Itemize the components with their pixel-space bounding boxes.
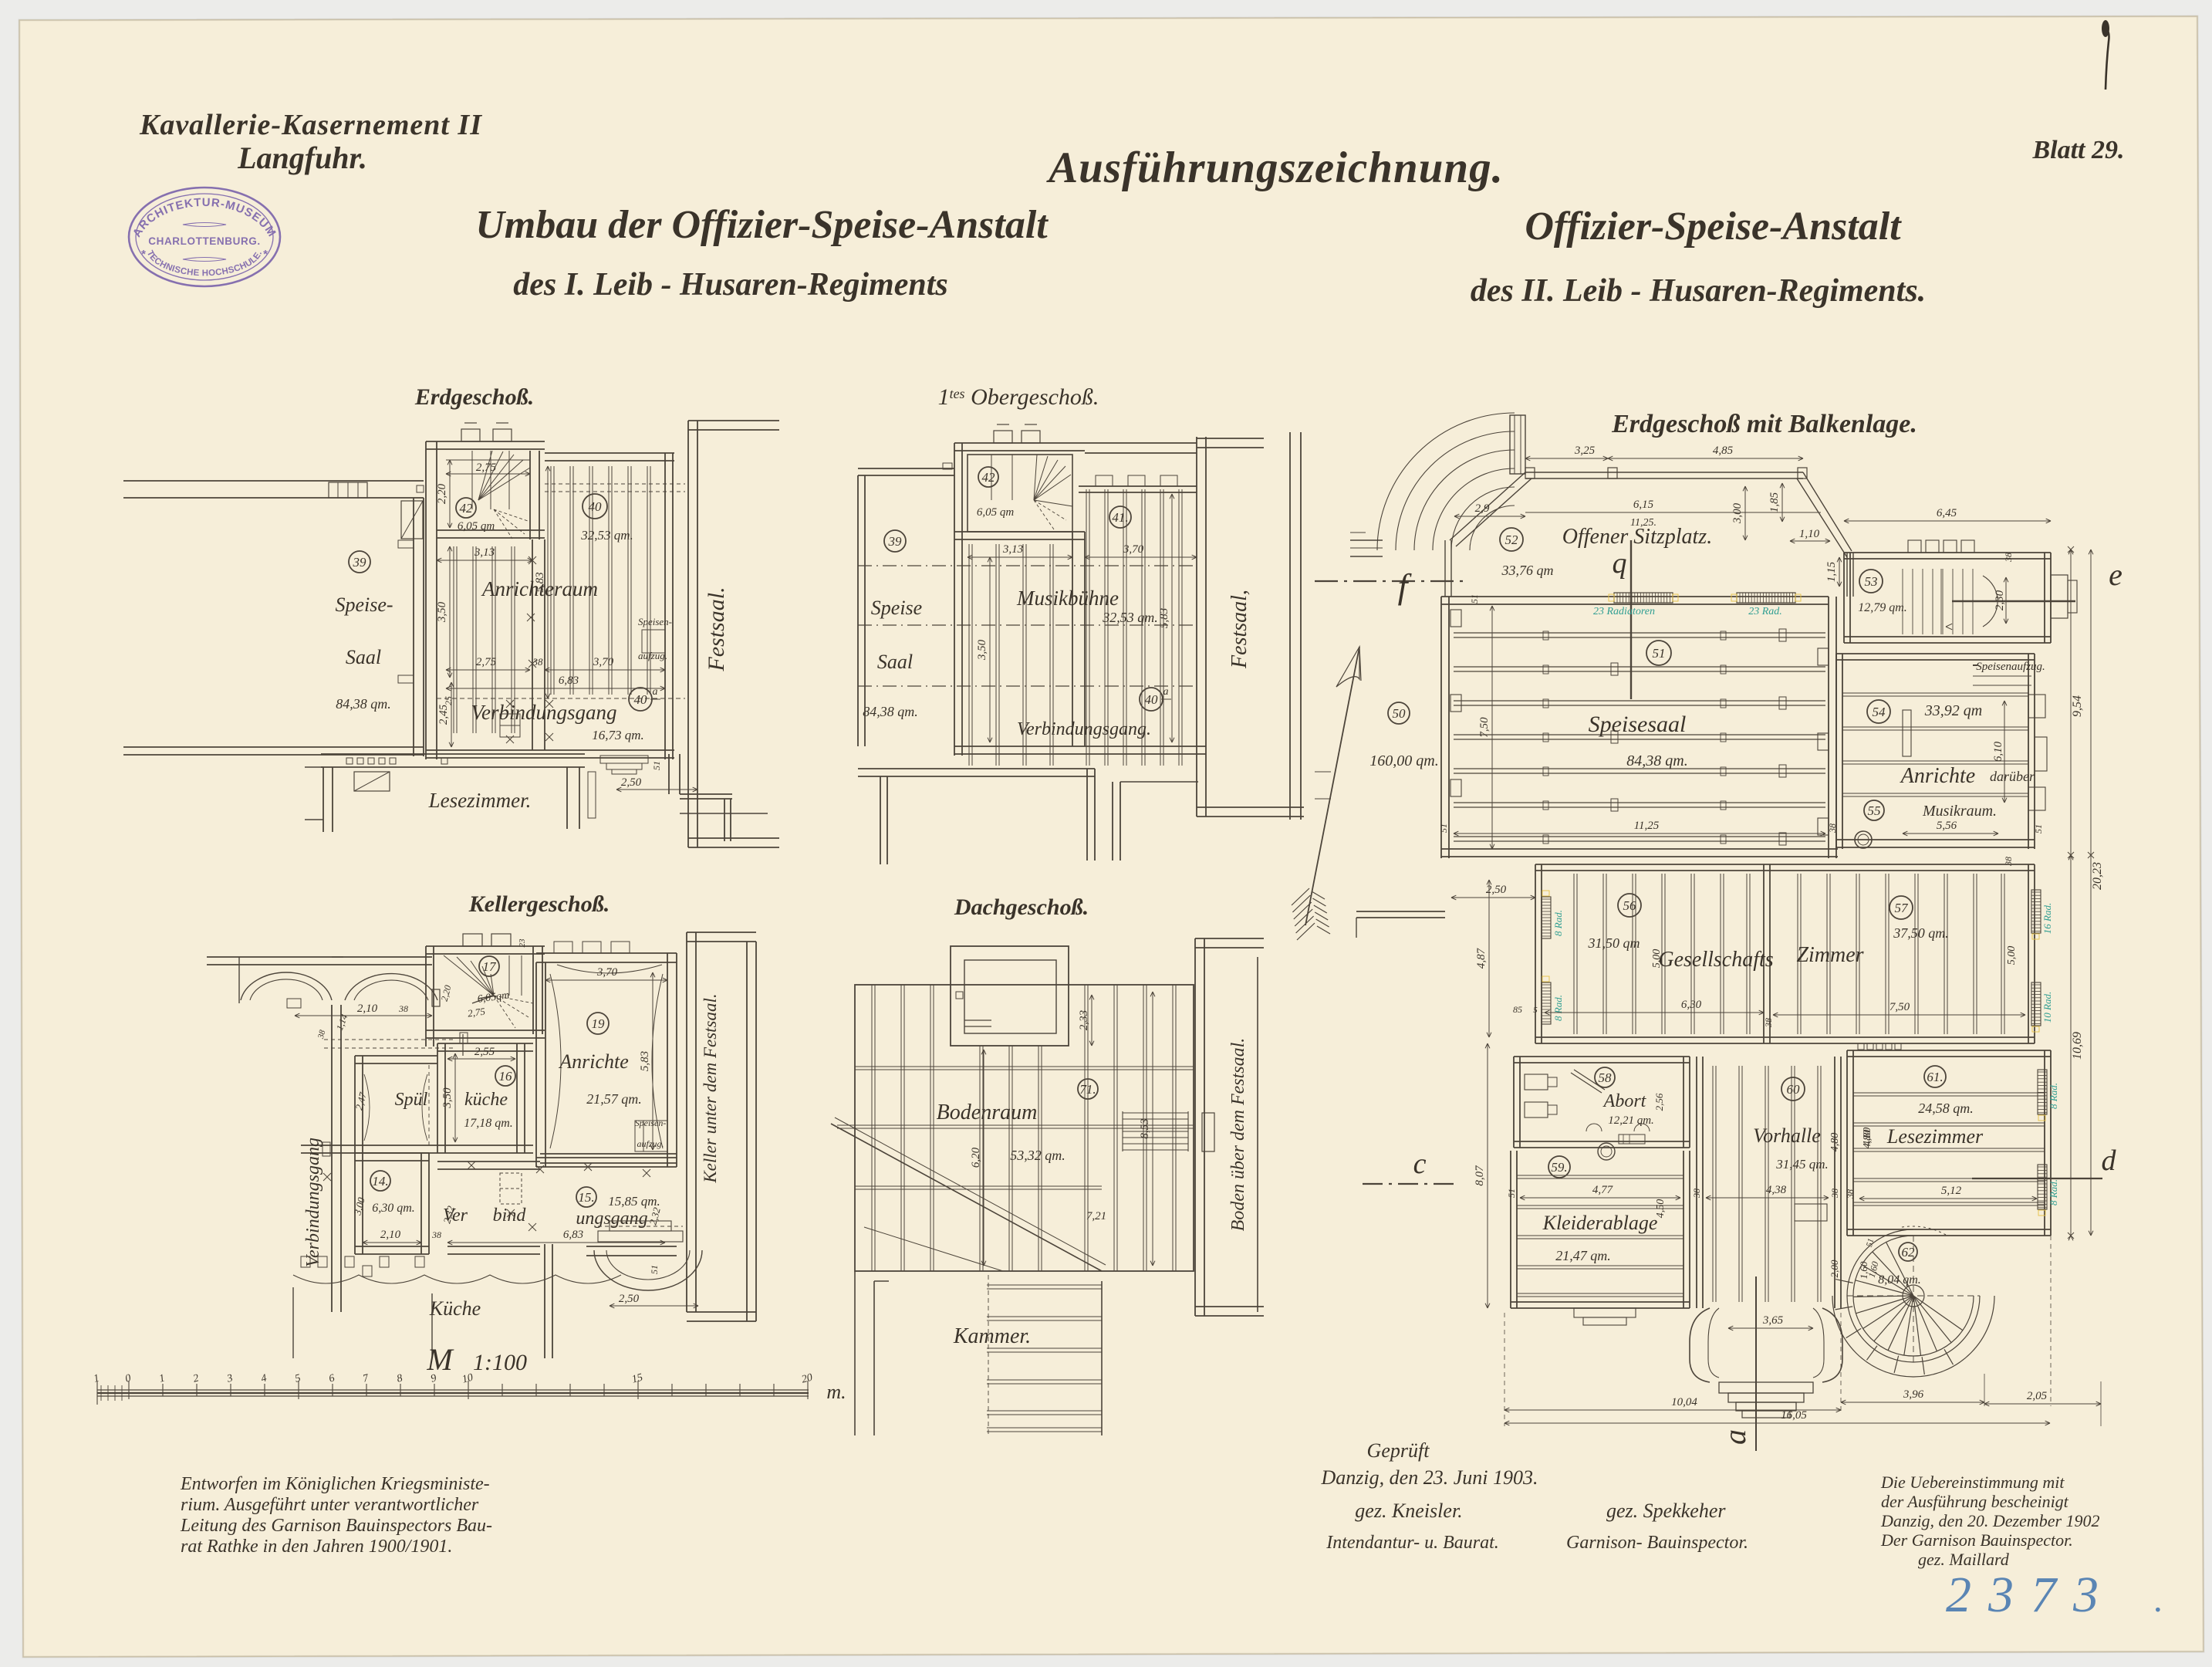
svg-text:20,23: 20,23 [2091, 862, 2104, 890]
svg-text:40: 40 [589, 499, 603, 514]
svg-text:3,96: 3,96 [1903, 1388, 1924, 1401]
svg-text:6,05 qm: 6,05 qm [458, 520, 495, 533]
svg-text:Verbindungsgang.: Verbindungsgang. [1017, 719, 1151, 739]
svg-text:10,69: 10,69 [2071, 1032, 2084, 1060]
svg-text:Offizier-Speise-Anstalt: Offizier-Speise-Anstalt [1525, 205, 1902, 249]
svg-text:Speisen-: Speisen- [638, 616, 672, 627]
svg-text:a: a [653, 686, 658, 698]
svg-text:bind: bind [493, 1205, 527, 1226]
svg-text:32,53 qm.: 32,53 qm. [1102, 610, 1158, 625]
svg-text:2,75: 2,75 [476, 656, 497, 668]
svg-text:a: a [1163, 686, 1169, 698]
svg-text:2,10: 2,10 [380, 1229, 401, 1241]
svg-text:Garnison- Bauinspector.: Garnison- Bauinspector. [1566, 1533, 1748, 1553]
svg-text:5,12: 5,12 [1941, 1185, 1962, 1197]
svg-text:2,50: 2,50 [621, 776, 642, 789]
svg-text:62: 62 [1902, 1245, 1916, 1260]
svg-text:84,38 qm.: 84,38 qm. [863, 704, 918, 719]
svg-text:8,53: 8,53 [1139, 1118, 1151, 1138]
svg-text:42: 42 [460, 501, 474, 516]
svg-text:Saal: Saal [346, 646, 381, 668]
svg-text:58: 58 [1599, 1070, 1613, 1085]
svg-text:Verbindungsgang: Verbindungsgang [471, 701, 617, 724]
svg-text:33,92 qm: 33,92 qm [1924, 702, 1982, 719]
svg-text:6,45: 6,45 [1937, 507, 1957, 519]
svg-text:2,9: 2,9 [1475, 502, 1490, 515]
svg-text:23 Radiatoren: 23 Radiatoren [1593, 606, 1655, 617]
svg-text:2,50: 2,50 [619, 1293, 640, 1305]
svg-text:Ausführungszeichnung.: Ausführungszeichnung. [1046, 144, 1504, 192]
svg-text:rat Rathke in den Jahren 1900/: rat Rathke in den Jahren 1900/1901. [181, 1537, 452, 1557]
svg-text:3,25: 3,25 [1574, 445, 1596, 457]
svg-text:5,56: 5,56 [1937, 820, 1957, 832]
svg-text:84,38 qm.: 84,38 qm. [1626, 752, 1687, 769]
svg-text:Dachgeschoß.: Dachgeschoß. [954, 894, 1089, 920]
svg-text:12,79 qm.: 12,79 qm. [1858, 601, 1907, 614]
svg-text:23: 23 [518, 938, 527, 948]
svg-text:2,10: 2,10 [357, 1003, 378, 1015]
svg-text:3,65: 3,65 [1762, 1314, 1784, 1327]
svg-text:Kammer.: Kammer. [953, 1324, 1031, 1348]
svg-text:der Ausführung bescheinigt: der Ausführung bescheinigt [1881, 1492, 2069, 1511]
svg-text:des I. Leib - Husaren-Regimen: des I. Leib - Husaren-Regiments [513, 267, 948, 303]
svg-text:51: 51 [1438, 823, 1449, 833]
svg-text:19: 19 [592, 1016, 606, 1031]
svg-text:8,07: 8,07 [1474, 1165, 1486, 1186]
svg-text:1,10: 1,10 [1799, 528, 1820, 540]
svg-text:Blatt 29.: Blatt 29. [2031, 136, 2124, 164]
svg-text:38: 38 [1691, 1189, 1702, 1199]
svg-text:4,87: 4,87 [1475, 947, 1488, 969]
svg-text:Lesezimmer: Lesezimmer [1886, 1125, 1984, 1148]
svg-text:Musikbühne: Musikbühne [1016, 587, 1119, 610]
svg-text:CHARLOTTENBURG.: CHARLOTTENBURG. [148, 235, 261, 247]
svg-text:aufzug.: aufzug. [638, 650, 667, 661]
svg-text:21,57 qm.: 21,57 qm. [586, 1091, 642, 1107]
svg-text:3,70: 3,70 [596, 966, 618, 979]
svg-text:m.: m. [826, 1381, 846, 1403]
svg-text:21,47 qm.: 21,47 qm. [1555, 1248, 1611, 1263]
svg-text:6,30: 6,30 [1681, 999, 1702, 1011]
svg-text:Festsaal.: Festsaal. [704, 587, 729, 671]
svg-text:51: 51 [651, 761, 662, 770]
svg-text:3,13: 3,13 [474, 546, 495, 559]
svg-text:56: 56 [1623, 898, 1637, 913]
svg-text:55: 55 [1868, 803, 1881, 818]
svg-text:14.: 14. [372, 1174, 388, 1189]
svg-text:Saal: Saal [877, 651, 913, 673]
svg-text:38: 38 [532, 656, 544, 668]
svg-text:3,50: 3,50 [976, 639, 988, 661]
svg-text:.: . [2154, 1579, 2163, 1620]
svg-text:Boden über dem Festsaal.: Boden über dem Festsaal. [1228, 1038, 1248, 1232]
svg-text:40: 40 [634, 692, 648, 707]
svg-text:53: 53 [1865, 574, 1878, 589]
svg-text:2,75: 2,75 [467, 1005, 486, 1019]
svg-text:aufzug.: aufzug. [637, 1138, 664, 1149]
svg-text:160,00 qm.: 160,00 qm. [1369, 752, 1438, 769]
svg-text:61.: 61. [1927, 1070, 1943, 1084]
svg-text:Speisenaufzug.: Speisenaufzug. [1976, 661, 2045, 673]
svg-text:Speisen-: Speisen- [635, 1118, 667, 1128]
svg-text:2,55: 2,55 [474, 1046, 495, 1058]
svg-text:*: * [263, 248, 268, 261]
svg-text:17,18 qm.: 17,18 qm. [464, 1117, 513, 1130]
svg-text:Intendantur- u. Baurat.: Intendantur- u. Baurat. [1326, 1533, 1499, 1553]
svg-text:38: 38 [2003, 553, 2014, 563]
svg-text:3,70: 3,70 [1123, 543, 1144, 556]
svg-text:16: 16 [499, 1069, 513, 1084]
svg-text:2373: 2373 [1946, 1567, 2116, 1623]
svg-text:60: 60 [1787, 1082, 1801, 1097]
svg-text:16,05: 16,05 [1781, 1409, 1807, 1422]
svg-text:85: 85 [1513, 1004, 1522, 1015]
svg-text:2,33: 2,33 [1078, 1010, 1090, 1030]
svg-text:6,15: 6,15 [1633, 499, 1654, 511]
svg-text:2,45: 2,45 [437, 704, 450, 725]
svg-text:3,13: 3,13 [1002, 543, 1023, 556]
svg-text:Vorhalle: Vorhalle [1753, 1124, 1821, 1147]
svg-text:51: 51 [1469, 594, 1480, 604]
svg-text:5: 5 [1533, 1006, 1538, 1015]
svg-text:Anrichte: Anrichte [1900, 764, 1975, 788]
svg-text:a: a [1717, 1429, 1752, 1445]
svg-text:38: 38 [398, 1003, 408, 1014]
svg-text:33,76 qm: 33,76 qm [1501, 563, 1554, 578]
svg-text:7,50: 7,50 [1478, 717, 1491, 738]
svg-text:71.: 71. [1079, 1082, 1096, 1097]
svg-text:2,00: 2,00 [1829, 1260, 1840, 1277]
svg-text:d: d [2102, 1145, 2117, 1177]
svg-text:2,56: 2,56 [1653, 1093, 1665, 1111]
svg-text:Festsaal,: Festsaal, [1228, 590, 1251, 669]
svg-text:8 Rad.: 8 Rad. [2048, 1179, 2059, 1205]
svg-text:39: 39 [888, 534, 903, 549]
svg-text:16,73 qm.: 16,73 qm. [592, 728, 644, 742]
svg-text:Leitung des Garnison Bauinspec: Leitung des Garnison Bauinspectors Bau- [180, 1516, 492, 1536]
svg-text:Kellergeschoß.: Kellergeschoß. [468, 891, 610, 917]
svg-text:38: 38 [1845, 1189, 1856, 1199]
svg-text:Entworfen im Königlichen Krieg: Entworfen im Königlichen Kriegsministe- [180, 1474, 490, 1494]
svg-text:Speise-: Speise- [335, 593, 393, 616]
svg-text:11,25: 11,25 [1634, 820, 1660, 832]
svg-text:4,80: 4,80 [1862, 1130, 1873, 1149]
svg-text:c: c [1413, 1148, 1427, 1180]
svg-text:17: 17 [483, 959, 498, 974]
svg-text:6,10: 6,10 [1992, 741, 2004, 762]
svg-text:59.: 59. [1551, 1160, 1567, 1175]
svg-text:10,04: 10,04 [1671, 1396, 1697, 1408]
svg-text:darüber: darüber [1990, 769, 2035, 784]
svg-text:10 Rad.: 10 Rad. [2041, 992, 2053, 1023]
svg-text:42: 42 [982, 470, 996, 485]
svg-text:31,50 qm: 31,50 qm [1588, 935, 1640, 951]
svg-text:7,21: 7,21 [1086, 1210, 1106, 1222]
svg-text:Erdgeschoß.: Erdgeschoß. [414, 384, 534, 410]
svg-text:51: 51 [2033, 824, 2044, 833]
svg-text:8,04 qm.: 8,04 qm. [1878, 1273, 1921, 1287]
svg-text:Der Garnison Bauinspector.: Der Garnison Bauinspector. [1880, 1530, 2073, 1550]
svg-text:8 Rad.: 8 Rad. [2048, 1083, 2059, 1109]
svg-text:6,20: 6,20 [970, 1147, 982, 1168]
svg-text:4,38: 4,38 [1766, 1184, 1787, 1196]
svg-text:5,00: 5,00 [1651, 949, 1663, 969]
svg-text:23 Rad.: 23 Rad. [1748, 606, 1782, 617]
svg-text:38: 38 [431, 1229, 441, 1240]
svg-text:53,32 qm.: 53,32 qm. [1010, 1148, 1065, 1163]
svg-text:37,50 qm.: 37,50 qm. [1893, 925, 1949, 941]
svg-text:Gesellschafts: Gesellschafts [1658, 948, 1773, 972]
svg-text:39: 39 [353, 555, 367, 570]
svg-text:6,05 qm: 6,05 qm [977, 506, 1015, 519]
svg-text:1,15: 1,15 [1825, 561, 1838, 582]
svg-text:16 Rad.: 16 Rad. [2041, 903, 2053, 934]
svg-text:7,50: 7,50 [1889, 1001, 1910, 1013]
svg-text:8 Rad.: 8 Rad. [1552, 995, 1564, 1021]
svg-text:4,80: 4,80 [1829, 1133, 1841, 1152]
svg-text:1:100: 1:100 [473, 1350, 527, 1375]
svg-text:Kleiderablage: Kleiderablage [1542, 1212, 1658, 1234]
svg-text:Speise: Speise [871, 597, 922, 619]
svg-text:38: 38 [1763, 1018, 1774, 1028]
svg-text:3,50: 3,50 [441, 1087, 454, 1109]
svg-text:4,50: 4,50 [1655, 1199, 1667, 1219]
svg-text:Abort: Abort [1602, 1091, 1647, 1111]
svg-text:rium. Ausgeführt unter verant: rium. Ausgeführt unter verantwortlicher [181, 1495, 479, 1515]
svg-text:52: 52 [1505, 533, 1519, 547]
svg-text:Anrichte: Anrichte [558, 1050, 629, 1073]
svg-text:Zimmer: Zimmer [1796, 943, 1863, 967]
svg-text:50: 50 [1393, 706, 1407, 721]
svg-text:Bodenraum: Bodenraum [937, 1101, 1038, 1124]
svg-text:5,00: 5,00 [2006, 946, 2018, 965]
svg-text:38: 38 [1829, 1189, 1840, 1199]
svg-text:gez. Spekkeher: gez. Spekkeher [1606, 1500, 1726, 1522]
svg-text:gez. Kneisler.: gez. Kneisler. [1355, 1500, 1462, 1522]
svg-text:51: 51 [649, 1265, 660, 1274]
svg-text:Danzig, den 23. Juni 1903.: Danzig, den 23. Juni 1903. [1321, 1466, 1538, 1489]
svg-text:6,30 qm.: 6,30 qm. [372, 1202, 415, 1215]
svg-text:Geprüft: Geprüft [1367, 1439, 1430, 1462]
svg-text:24,58 qm.: 24,58 qm. [1918, 1101, 1974, 1116]
svg-text:4,77: 4,77 [1592, 1184, 1614, 1196]
svg-text:Spül: Spül [395, 1090, 428, 1110]
svg-text:*: * [141, 248, 146, 261]
svg-text:Keller unter dem Festsaal.: Keller unter dem Festsaal. [701, 993, 720, 1183]
svg-text:54: 54 [1873, 705, 1886, 719]
svg-text:15,85 qm.: 15,85 qm. [608, 1194, 660, 1209]
svg-text:32,53 qm.: 32,53 qm. [580, 528, 633, 543]
svg-text:Erdgeschoß mit Balkenlage.: Erdgeschoß mit Balkenlage. [1611, 410, 1917, 438]
svg-text:31,45 qm.: 31,45 qm. [1775, 1157, 1829, 1172]
svg-text:84,38 qm.: 84,38 qm. [336, 696, 391, 712]
svg-text:8 Rad.: 8 Rad. [1552, 910, 1564, 936]
svg-text:15.: 15. [578, 1190, 594, 1205]
svg-text:küche: küche [464, 1090, 508, 1110]
svg-text:Langfuhr.: Langfuhr. [237, 140, 367, 175]
svg-text:e: e [2109, 557, 2123, 592]
svg-text:9,54: 9,54 [2071, 695, 2084, 717]
svg-text:5,83: 5,83 [534, 572, 546, 592]
svg-text:Speisesaal: Speisesaal [1589, 712, 1687, 737]
svg-text:M: M [426, 1342, 454, 1377]
svg-text:Danzig, den 20. Dezember 1902: Danzig, den 20. Dezember 1902 [1880, 1511, 2100, 1530]
svg-text:57: 57 [1895, 901, 1910, 915]
svg-text:6,83: 6,83 [563, 1229, 583, 1241]
svg-text:2,30: 2,30 [1994, 590, 2006, 610]
svg-text:12,21 qm.: 12,21 qm. [1608, 1114, 1654, 1127]
svg-text:6,83: 6,83 [559, 675, 579, 687]
svg-text:des II. Leib - Husaren-Regime: des II. Leib - Husaren-Regiments. [1471, 273, 1926, 309]
svg-text:2,05: 2,05 [2027, 1390, 2048, 1402]
svg-text:3,50: 3,50 [436, 601, 448, 623]
svg-text:Verbindungsgang: Verbindungsgang [303, 1138, 323, 1267]
svg-text:38: 38 [2003, 857, 2014, 867]
svg-text:Lesezimmer.: Lesezimmer. [428, 789, 532, 812]
svg-text:25: 25 [443, 696, 454, 705]
svg-text:3,70: 3,70 [593, 656, 614, 668]
svg-text:Die Uebereinstimmung mit: Die Uebereinstimmung mit [1880, 1473, 2065, 1492]
svg-text:2,75: 2,75 [476, 462, 497, 474]
svg-text:ungsgang: ungsgang [576, 1209, 647, 1229]
svg-text:41.: 41. [1112, 510, 1128, 525]
svg-text:q: q [1613, 547, 1627, 580]
svg-text:Musikraum.: Musikraum. [1922, 803, 1997, 820]
svg-text:5,83: 5,83 [639, 1051, 651, 1071]
svg-text:40: 40 [1145, 692, 1159, 707]
svg-text:Küche: Küche [429, 1297, 481, 1320]
svg-text:3,00: 3,00 [1731, 502, 1744, 524]
svg-text:11,25.: 11,25. [1630, 517, 1656, 529]
svg-text:2,50: 2,50 [1486, 884, 1507, 896]
svg-text:2,20: 2,20 [436, 483, 448, 504]
svg-text:51: 51 [1506, 1189, 1517, 1198]
svg-text:51: 51 [1653, 646, 1666, 661]
svg-text:Kavallerie-Kasernement II: Kavallerie-Kasernement II [139, 109, 482, 141]
svg-text:1,85: 1,85 [1768, 492, 1781, 512]
svg-text:4,85: 4,85 [1713, 445, 1734, 457]
svg-text:Umbau der Offizier-Speise-Anst: Umbau der Offizier-Speise-Anstalt [475, 203, 1049, 247]
